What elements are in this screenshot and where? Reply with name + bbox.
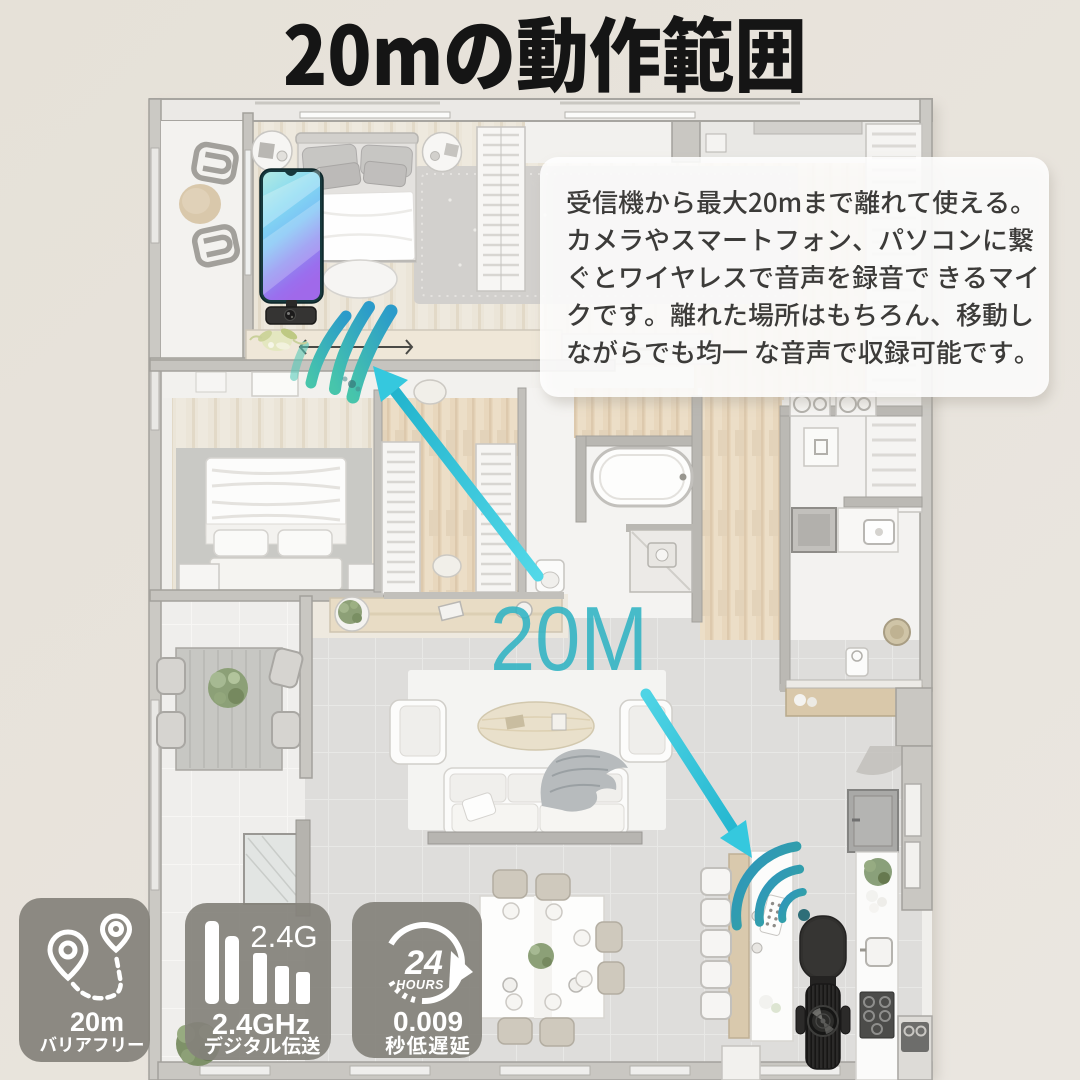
svg-text:20m: 20m	[70, 1007, 124, 1037]
svg-text:2.4GHz: 2.4GHz	[212, 1009, 310, 1041]
svg-text:2.4G: 2.4G	[250, 919, 317, 954]
svg-text:24: 24	[404, 944, 443, 982]
svg-text:20M: 20M	[490, 589, 648, 690]
svg-text:0.009: 0.009	[393, 1006, 463, 1037]
svg-text:HOURS: HOURS	[396, 978, 444, 992]
